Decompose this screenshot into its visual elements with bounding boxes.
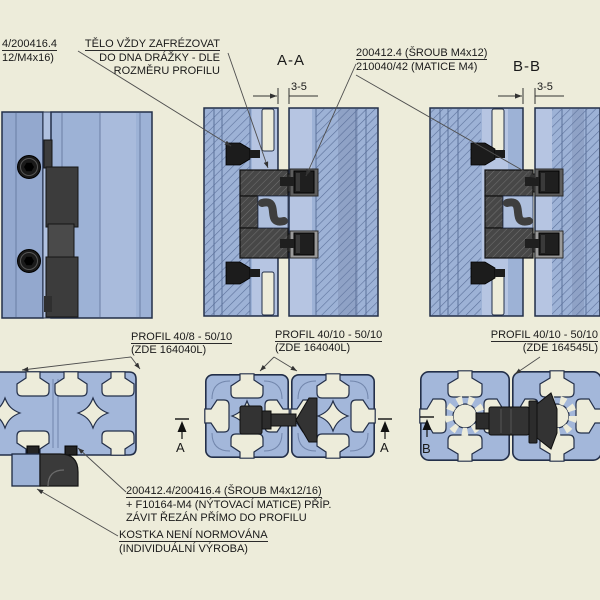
profile-center-label-line1: PROFIL 40/10 - 50/10 bbox=[275, 329, 382, 342]
block-note-line1: KOSTKA NENÍ NORMOVÁNA bbox=[119, 529, 268, 542]
fastener-note-line1: 200412.4/200416.4 (ŠROUB M4x12/16) bbox=[126, 485, 322, 498]
view-profile-strip bbox=[0, 372, 136, 486]
cut-arrow-a-right bbox=[378, 419, 392, 439]
cut-letter-a-left: A bbox=[176, 442, 185, 454]
section-a-title: A-A bbox=[277, 55, 305, 67]
fastener-note-line3: ZÁVIT ŘEZÁN PŘÍMO DO PROFILU bbox=[126, 512, 307, 524]
top-left-note-line2: 12/M4x16) bbox=[2, 52, 54, 64]
view-profiles-40-joined bbox=[205, 374, 375, 458]
view-profiles-45-joined bbox=[420, 371, 600, 461]
gap-dim-b-value: 3-5 bbox=[537, 81, 553, 93]
cut-letter-b-left: B bbox=[422, 443, 431, 455]
gap-dim-a-value: 3-5 bbox=[291, 81, 307, 93]
cut-arrow-a-left bbox=[175, 419, 189, 439]
block-note-line2: (INDIVIDUÁLNÍ VÝROBA) bbox=[119, 543, 248, 555]
clamp-bracket bbox=[44, 140, 78, 317]
body-note-line3: ROZMĚRU PROFILU bbox=[84, 65, 220, 77]
profile-right-label-line2: (ZDE 164545L) bbox=[468, 342, 598, 354]
body-note-line1: TĚLO VŽDY ZAFRÉZOVAT bbox=[84, 38, 220, 51]
gap-dimension-a bbox=[253, 88, 318, 104]
socket-screw-head bbox=[18, 156, 41, 179]
view-section-b-b bbox=[430, 108, 600, 316]
view-section-a-a bbox=[204, 108, 378, 316]
section-b-title: B-B bbox=[513, 61, 541, 73]
profile-left-label-line1: PROFIL 40/8 - 50/10 bbox=[131, 331, 232, 344]
socket-screw-head bbox=[18, 250, 41, 273]
profile-right-label-line1: PROFIL 40/10 - 50/10 bbox=[468, 329, 598, 342]
fastener-note-line2: + F10164-M4 (NÝTOVACÍ MATICE) PŘÍP. bbox=[126, 499, 332, 511]
profile-center-label-line2: (ZDE 164040L) bbox=[275, 342, 350, 354]
view-assembly-side bbox=[2, 112, 152, 318]
top-left-note-line1: 4/200416.4 bbox=[2, 38, 57, 51]
gap-dimension-b bbox=[498, 88, 564, 104]
cut-letter-a-right: A bbox=[380, 442, 389, 454]
screw-note-line2: 210040/42 (MATICE M4) bbox=[356, 61, 477, 73]
cad-drawing-canvas: 4/200416.4 12/M4x16) TĚLO VŽDY ZAFRÉZOVA… bbox=[0, 0, 600, 600]
screw-note-line1: 200412.4 (ŠROUB M4x12) bbox=[356, 47, 487, 60]
profile-left-label-line2: (ZDE 164040L) bbox=[131, 344, 206, 356]
body-note-line2: DO DNA DRÁŽKY - DLE bbox=[84, 52, 220, 64]
